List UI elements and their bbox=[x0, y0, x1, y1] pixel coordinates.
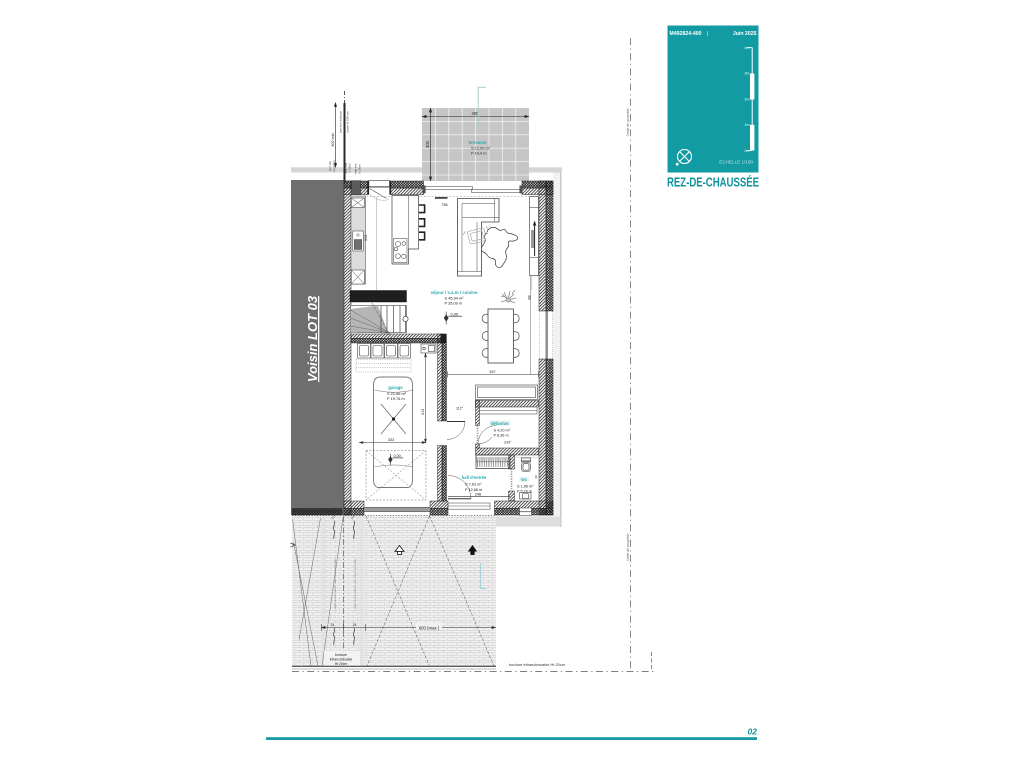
svg-text:ht 30cm: ht 30cm bbox=[357, 164, 361, 173]
svg-text:Ht 20cm: Ht 20cm bbox=[335, 662, 348, 666]
svg-text:M492824-400: M492824-400 bbox=[670, 31, 702, 37]
svg-text:S 4,20 m²: S 4,20 m² bbox=[494, 429, 511, 433]
svg-text:88: 88 bbox=[528, 295, 532, 299]
svg-text:2m: 2m bbox=[745, 97, 750, 101]
svg-text:P 14,4 m: P 14,4 m bbox=[471, 151, 487, 156]
svg-text:313: 313 bbox=[364, 235, 368, 241]
svg-text:0m: 0m bbox=[745, 149, 750, 153]
svg-text:ht 30cm: ht 30cm bbox=[348, 163, 352, 172]
svg-text:P 19,76 m: P 19,76 m bbox=[387, 396, 405, 401]
svg-text:Juin 2025: Juin 2025 bbox=[733, 31, 757, 37]
svg-text:234°: 234° bbox=[504, 441, 512, 445]
svg-text:ECHELLE 1/100: ECHELLE 1/100 bbox=[719, 160, 753, 165]
svg-text:|: | bbox=[707, 31, 708, 37]
svg-text:24: 24 bbox=[331, 623, 335, 627]
svg-text:Voisin LOT 03: Voisin LOT 03 bbox=[305, 295, 320, 382]
svg-text:règle d'évacuation des eaux pl: règle d'évacuation des eaux pluviales bbox=[333, 558, 337, 610]
svg-text:P 8,36 m: P 8,36 m bbox=[494, 434, 509, 438]
svg-text:REZ-DE-CHAUSSÉE: REZ-DE-CHAUSSÉE bbox=[667, 175, 759, 190]
svg-text:333: 333 bbox=[388, 438, 394, 442]
svg-text:bordure infranchissable Ht 20: bordure infranchissable Ht 20cm bbox=[509, 662, 565, 667]
svg-text:756: 756 bbox=[441, 203, 447, 207]
svg-text:413: 413 bbox=[421, 409, 425, 415]
svg-text:300: 300 bbox=[425, 140, 430, 148]
svg-text:prof. mur: prof. mur bbox=[344, 163, 348, 174]
svg-text:4m: 4m bbox=[745, 46, 750, 50]
svg-text:0,00: 0,00 bbox=[451, 311, 459, 316]
svg-text:garage: garage bbox=[388, 385, 403, 390]
svg-text:248: 248 bbox=[475, 492, 481, 496]
svg-text:112°: 112° bbox=[456, 407, 464, 411]
svg-text:infranchissable: infranchissable bbox=[330, 658, 353, 662]
svg-text:bordure: bordure bbox=[335, 653, 347, 657]
svg-text:600 (max ): 600 (max ) bbox=[419, 625, 440, 630]
svg-text:547: 547 bbox=[489, 370, 495, 374]
svg-text:séjour / s.à.m / cuisine: séjour / s.à.m / cuisine bbox=[431, 290, 478, 295]
svg-text:300 min: 300 min bbox=[331, 133, 335, 147]
svg-text:90: 90 bbox=[534, 475, 538, 479]
svg-text:02: 02 bbox=[748, 727, 758, 737]
svg-text:crepi mur: crepi mur bbox=[354, 163, 358, 174]
svg-text:mur 60cm: mur 60cm bbox=[332, 160, 336, 172]
svg-text:limite de propriété: limite de propriété bbox=[626, 533, 630, 560]
svg-text:S 1,66 m²: S 1,66 m² bbox=[517, 485, 534, 489]
svg-text:0,00: 0,00 bbox=[394, 454, 401, 458]
svg-text:hall d'entrée: hall d'entrée bbox=[462, 475, 487, 480]
svg-text:3m: 3m bbox=[745, 72, 750, 76]
svg-text:arase ht 260 cm: arase ht 260 cm bbox=[346, 111, 350, 133]
svg-text:terrasse: terrasse bbox=[469, 140, 487, 145]
svg-text:1m: 1m bbox=[745, 123, 750, 127]
svg-text:S 7,63 m²: S 7,63 m² bbox=[465, 483, 482, 487]
svg-text:débarras: débarras bbox=[491, 421, 509, 426]
svg-text:limite de propriété: limite de propriété bbox=[626, 108, 630, 135]
svg-text:règle d'évacuation des eaux pl: règle d'évacuation des eaux pluviales bbox=[353, 558, 357, 610]
svg-text:wc: wc bbox=[520, 477, 527, 482]
svg-text:P 5,70 m: P 5,70 m bbox=[517, 490, 532, 494]
svg-text:24: 24 bbox=[353, 623, 357, 627]
svg-text:P 35,09 m: P 35,09 m bbox=[445, 301, 463, 306]
svg-text:prof. min: prof. min bbox=[328, 160, 332, 171]
svg-text:axe mur mitoyen: axe mur mitoyen bbox=[339, 111, 343, 134]
